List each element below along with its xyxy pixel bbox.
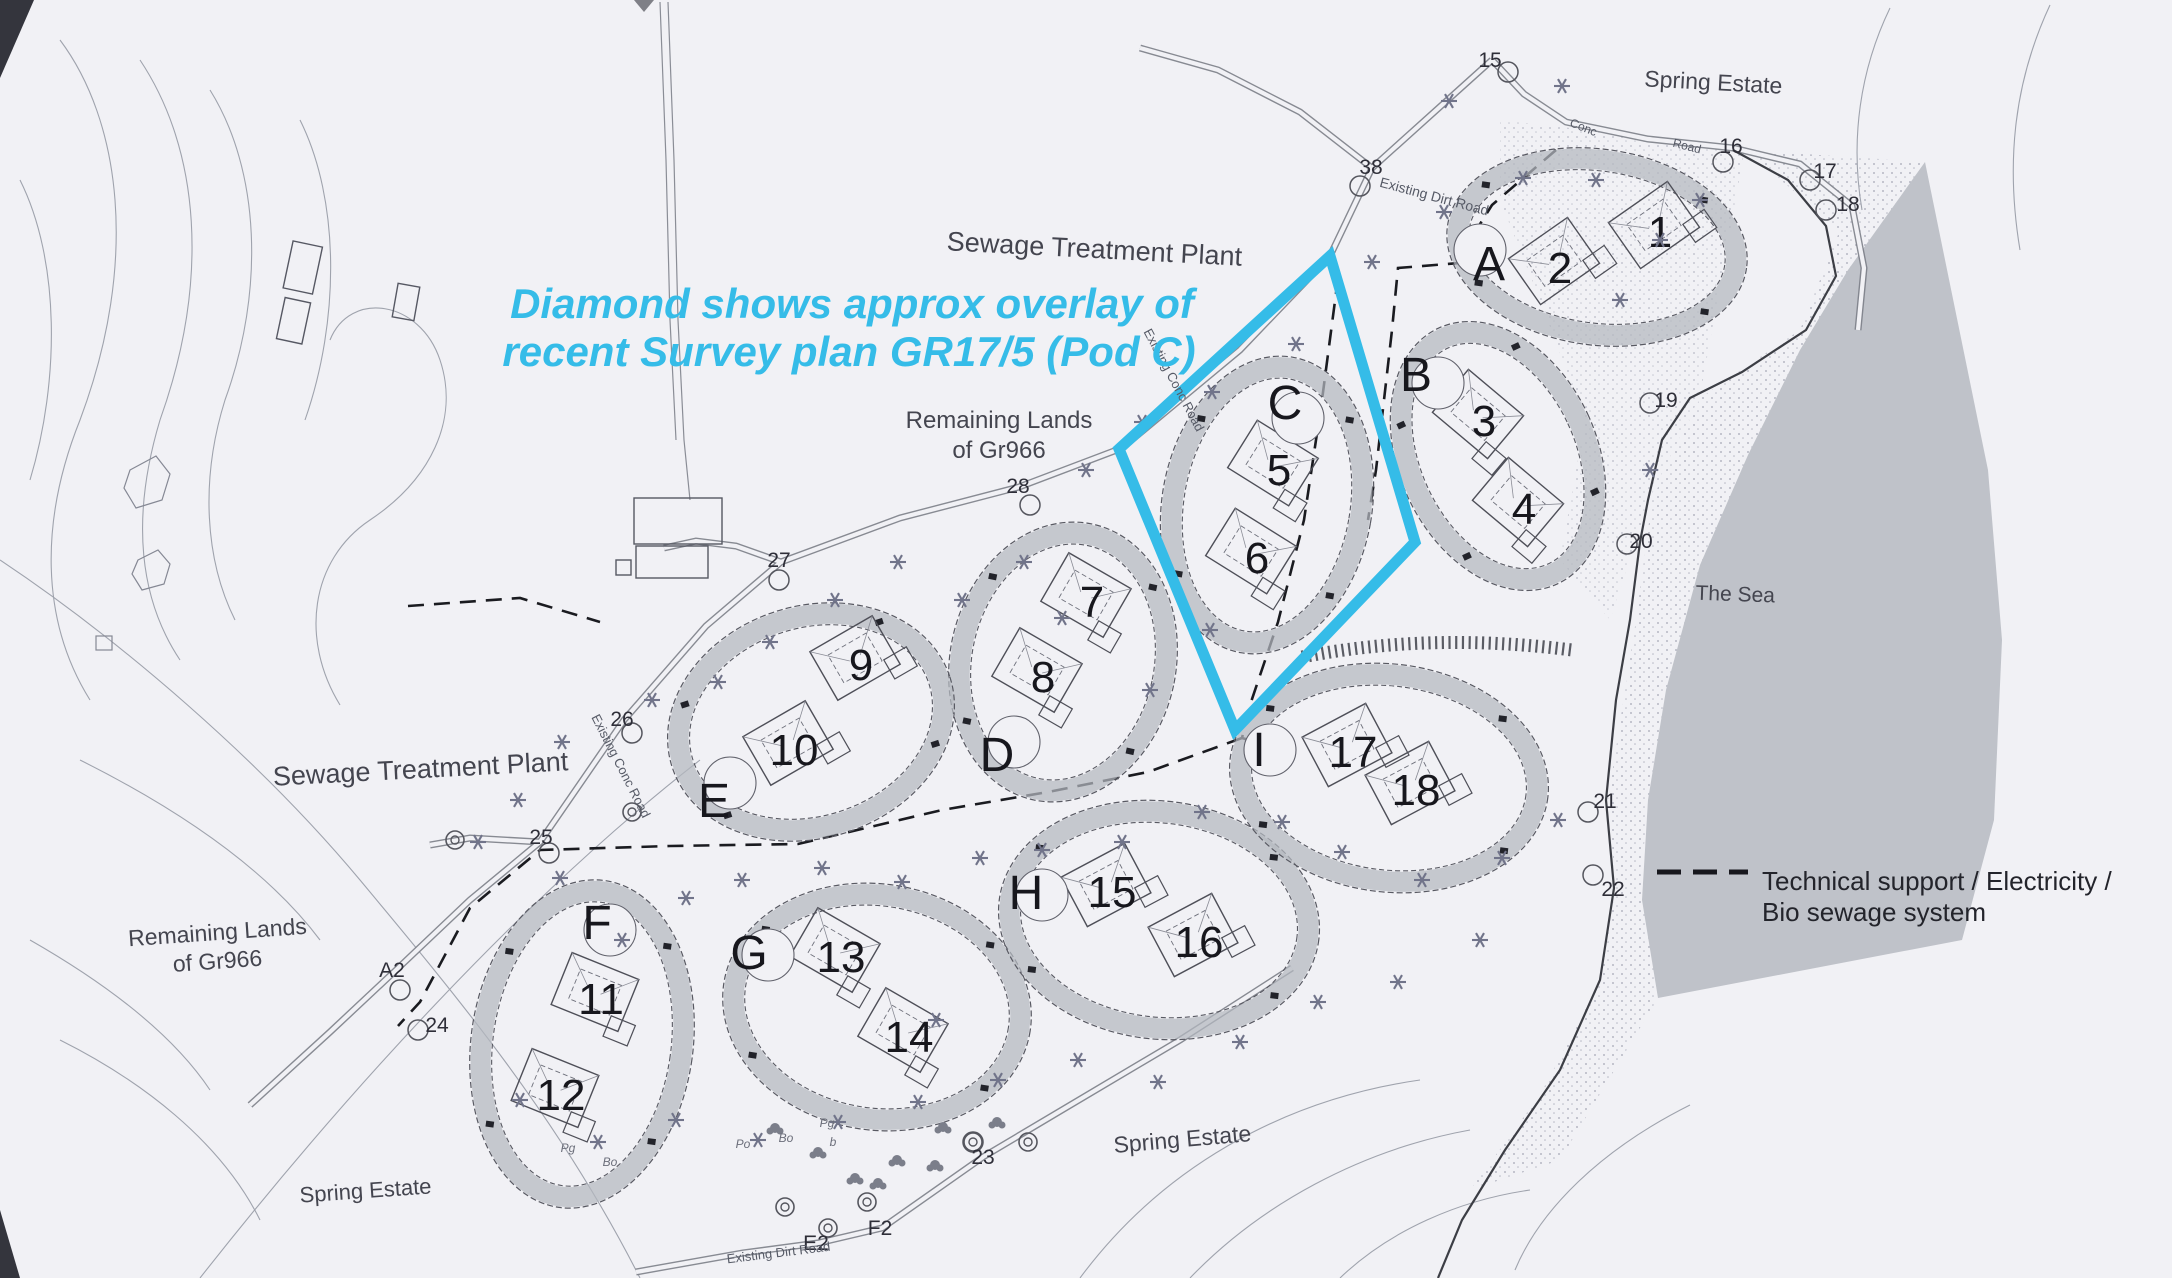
unit-17-label: 17 xyxy=(1329,728,1378,777)
waypoint-25-label: 25 xyxy=(529,826,552,849)
unit-7-label: 7 xyxy=(1080,578,1104,627)
waypoint-23-label: 23 xyxy=(971,1146,994,1169)
unit-5-label: 5 xyxy=(1267,446,1291,495)
waypoint-19-label: 19 xyxy=(1654,389,1677,412)
unit-16-label: 16 xyxy=(1175,918,1224,967)
unit-4-label: 4 xyxy=(1512,485,1536,534)
plant-code-1: Po xyxy=(736,1137,751,1151)
waypoint-26-label: 26 xyxy=(610,708,633,731)
unit-6-label: 6 xyxy=(1245,534,1269,583)
pod-letter-G: G xyxy=(730,927,767,980)
waypoint-16-label: 16 xyxy=(1719,135,1742,158)
waypoint-28-label: 28 xyxy=(1006,475,1029,498)
annotation-line-2: recent Survey plan GR17/5 (Pod C) xyxy=(502,328,1195,375)
pod-letter-H: H xyxy=(1009,867,1044,920)
unit-2-label: 2 xyxy=(1548,244,1572,293)
label-the-sea-line1: The Sea xyxy=(1695,582,1775,608)
unit-12-label: 12 xyxy=(537,1071,586,1120)
site-plan-scan: A12B34C56D78E910F1112G1314H1516I1718 151… xyxy=(0,0,2172,1278)
pod-letter-A: A xyxy=(1473,238,1505,291)
unit-13-label: 13 xyxy=(817,933,866,982)
waypoint-17-label: 17 xyxy=(1813,160,1836,183)
plant-code-4: b xyxy=(830,1135,837,1149)
waypoint-24-label: 24 xyxy=(425,1014,449,1037)
label-remaining-lands-center-line1: Remaining Lands xyxy=(906,407,1093,434)
waypoint-F2: F2 xyxy=(868,1217,893,1240)
unit-18-label: 18 xyxy=(1392,766,1441,815)
waypoint-15-label: 15 xyxy=(1478,49,1501,72)
waypoint-21-label: 21 xyxy=(1593,790,1616,813)
pod-letter-E: E xyxy=(698,775,730,828)
unit-9-label: 9 xyxy=(849,641,873,690)
plant-code-6: Bo xyxy=(603,1155,618,1169)
pod-letter-F: F xyxy=(582,897,611,950)
plant-code-3: Pg xyxy=(820,1116,835,1130)
unit-8-label: 8 xyxy=(1031,653,1055,702)
label-remaining-lands-center-line2: of Gr966 xyxy=(952,437,1045,464)
unit-14-label: 14 xyxy=(885,1013,934,1062)
plant-code-2: Bo xyxy=(779,1131,794,1145)
unit-15-label: 15 xyxy=(1088,868,1137,917)
waypoint-18-label: 18 xyxy=(1836,193,1859,216)
site-plan-drawing: A12B34C56D78E910F1112G1314H1516I1718 151… xyxy=(0,0,2172,1278)
pod-letter-B: B xyxy=(1400,349,1432,402)
annotation-line-1: Diamond shows approx overlay of xyxy=(510,280,1198,327)
legend-line-1: Technical support / Electricity / xyxy=(1762,866,2112,896)
legend-line-2: Bio sewage system xyxy=(1762,897,1986,927)
pod-letter-D: D xyxy=(980,729,1015,782)
unit-1-label: 1 xyxy=(1648,208,1672,257)
plant-code-5: Pg xyxy=(561,1141,576,1155)
waypoint-20-label: 20 xyxy=(1629,530,1652,553)
waypoint-A2-label: A2 xyxy=(379,959,405,982)
waypoint-22-label: 22 xyxy=(1601,878,1624,901)
label-the-sea: The Sea xyxy=(1695,582,1775,608)
pod-letter-C: C xyxy=(1268,377,1303,430)
waypoint-27-label: 27 xyxy=(767,549,790,572)
waypoint-38-label: 38 xyxy=(1359,156,1382,179)
unit-3-label: 3 xyxy=(1472,397,1496,446)
unit-10-label: 10 xyxy=(770,726,819,775)
waypoint-F2-label: F2 xyxy=(868,1217,893,1240)
unit-11-label: 11 xyxy=(578,975,624,1024)
pod-letter-I: I xyxy=(1252,724,1265,777)
